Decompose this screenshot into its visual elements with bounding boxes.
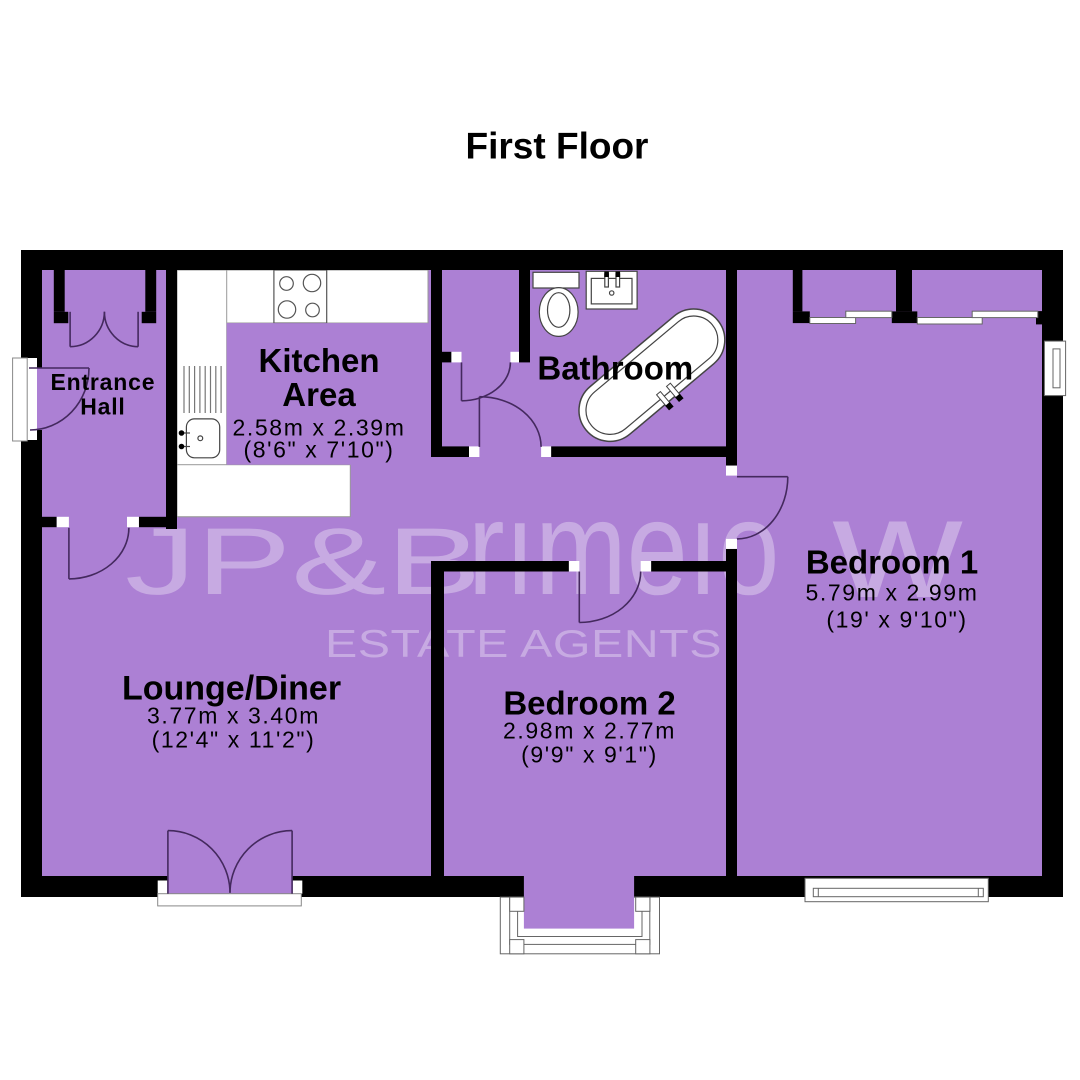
svg-text:Kitchen: Kitchen (258, 342, 379, 379)
svg-text:Bedroom 2: Bedroom 2 (503, 685, 675, 722)
svg-text:Entrance: Entrance (50, 369, 155, 395)
svg-text:3.77m x 3.40m: 3.77m x 3.40m (147, 703, 320, 729)
svg-text:(9'9" x 9'1"): (9'9" x 9'1") (521, 742, 658, 768)
svg-text:ESTATE AGENTS: ESTATE AGENTS (325, 622, 722, 666)
svg-text:2.98m x 2.77m: 2.98m x 2.77m (503, 718, 676, 744)
svg-text:Area: Area (282, 376, 356, 413)
svg-text:Bedroom 1: Bedroom 1 (806, 544, 978, 581)
svg-text:JP&B: JP&B (125, 508, 481, 615)
svg-text:(12'4" x 11'2"): (12'4" x 11'2") (152, 727, 316, 753)
svg-text:Hall: Hall (80, 394, 125, 420)
svg-text:(19' x 9'10"): (19' x 9'10") (826, 606, 967, 632)
svg-text:Bathroom: Bathroom (537, 349, 693, 386)
svg-text:(8'6" x 7'10"): (8'6" x 7'10") (243, 437, 394, 463)
svg-text:5.79m x 2.99m: 5.79m x 2.99m (806, 580, 979, 606)
svg-text:First Floor: First Floor (466, 126, 649, 167)
